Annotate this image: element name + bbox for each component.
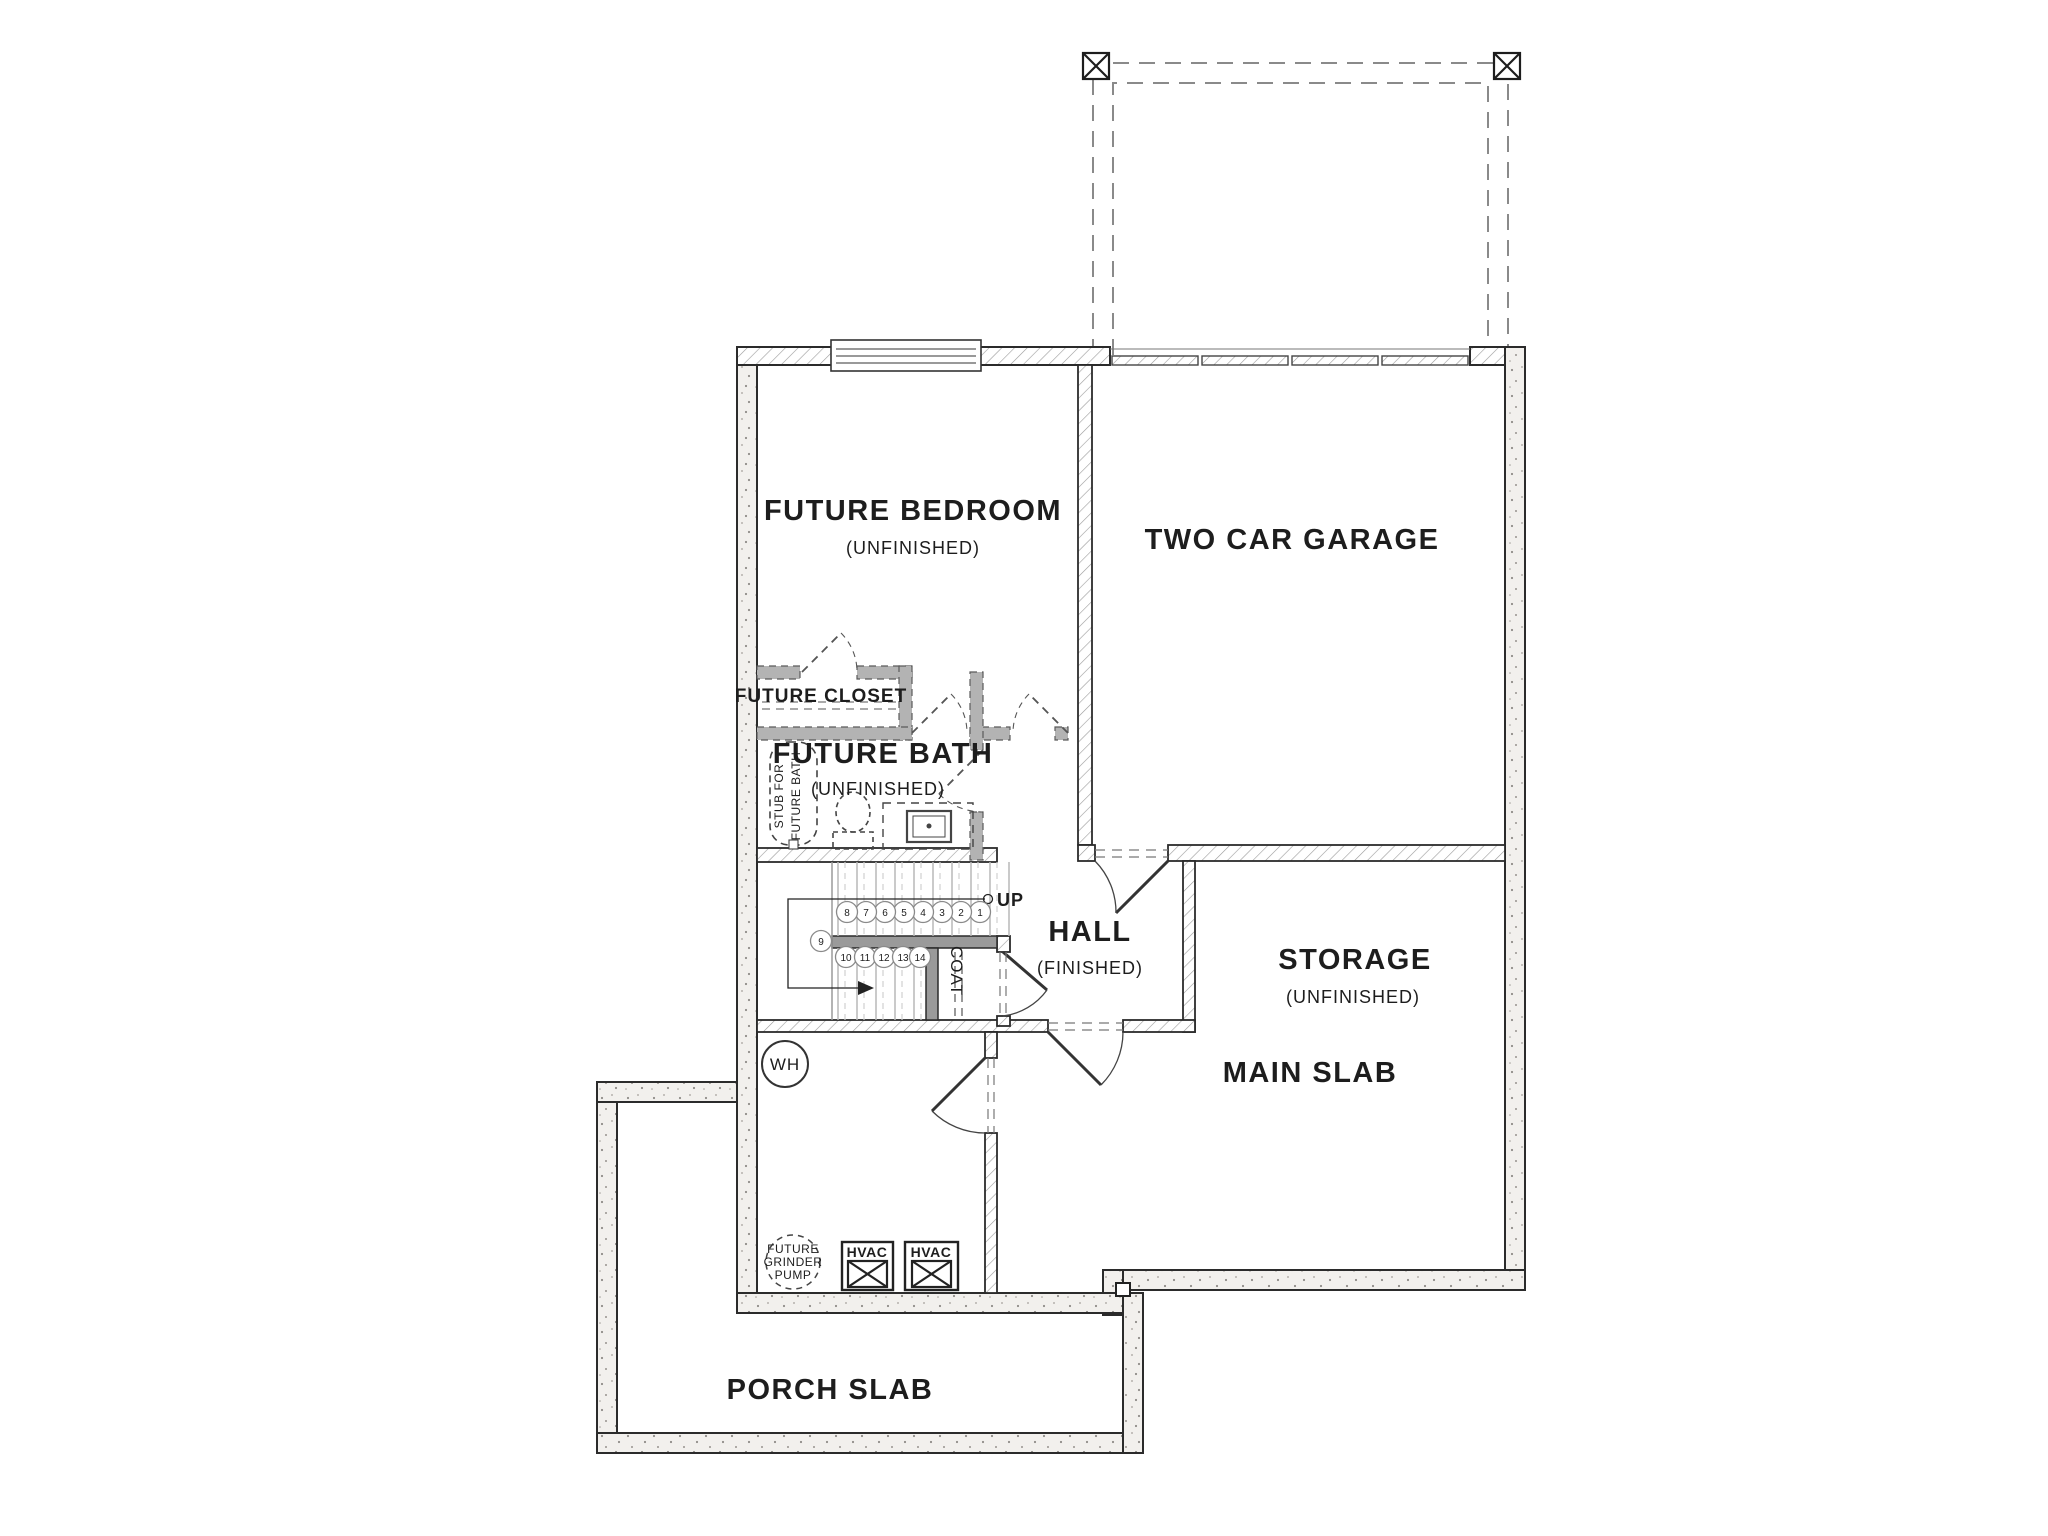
wall-porch-top [597,1082,737,1102]
future-closet-label: FUTURE CLOSET [735,686,907,707]
storage-status: (UNFINISHED) [1286,987,1420,1007]
main-slab-label: MAIN SLAB [1223,1057,1398,1089]
wall-porch-left [597,1082,617,1453]
wall-garage-bottom-b [1168,845,1505,861]
future-bath-status: (UNFINISHED) [811,779,945,799]
tread-7: 7 [863,908,869,919]
future-bedroom-label: FUTURE BEDROOM [764,495,1062,527]
wall-hall-bottom-b [1123,1020,1195,1032]
wall-left-main [737,347,757,1313]
future-closet-top-a [757,666,800,679]
porch-slab-label: PORCH SLAB [727,1374,934,1406]
garage-label: TWO CAR GARAGE [1145,524,1440,556]
wall-coat-jamb-top [997,936,1010,952]
apron-post-left-icon [1083,53,1109,79]
tread-8: 8 [844,908,850,919]
wall-coat-jamb-bottom [997,1016,1010,1026]
tread-10: 10 [840,953,852,964]
coat-label: COAT [947,946,966,996]
hvac-unit-1-label: HVAC [847,1244,888,1260]
up-label: UP [997,890,1024,910]
stair-center-rail [832,936,997,948]
wall-bath-bottom [757,848,997,862]
floor-plan-drawing: UP 1 2 3 4 5 6 7 8 9 10 11 [0,0,2048,1536]
tub-drain-icon [789,840,798,849]
tread-11: 11 [860,953,871,964]
hvac-unit-2: HVAC [905,1242,958,1290]
wall-hall-storage [1183,861,1195,1032]
hall-label: HALL [1048,916,1131,948]
tub-stub-note-line2: FUTURE BATH [789,752,803,841]
tread-12: 12 [878,953,890,964]
wall-bottom-main-slab [1103,1270,1525,1290]
tread-9: 9 [818,937,824,948]
water-heater: WH [762,1041,808,1087]
hvac-unit-2-label: HVAC [911,1244,952,1260]
wall-porch-right [1123,1293,1143,1453]
hvac-unit-1: HVAC [842,1242,893,1290]
wall-mech-right-b [985,1133,997,1293]
grinder-pump-line1: FUTURE [767,1242,819,1256]
grinder-pump-line2: GRINDER [764,1255,823,1269]
tread-1: 1 [977,908,983,919]
wall-bottom-mechanical [737,1293,1123,1313]
sink-drain-icon [927,824,932,829]
tread-6: 6 [882,908,888,919]
tread-13: 13 [897,953,909,964]
grinder-pump-line3: PUMP [775,1268,812,1282]
tread-2: 2 [958,908,964,919]
floor-plan-page: UP 1 2 3 4 5 6 7 8 9 10 11 [0,0,2048,1536]
future-landing-jamb [1055,727,1068,740]
tread-14: 14 [914,953,926,964]
apron-post-right-icon [1494,53,1520,79]
tread-3: 3 [939,908,945,919]
wall-mech-right-a [985,1032,997,1058]
future-bath-label: FUTURE BATH [773,738,994,770]
wall-bedroom-garage [1078,365,1092,845]
porch-corner-post [1116,1283,1130,1296]
wall-porch-bottom [597,1433,1143,1453]
tub-stub-note-line1: STUB FOR [772,764,786,829]
storage-label: STORAGE [1278,944,1431,976]
hall-status: (FINISHED) [1037,958,1143,978]
future-bedroom-status: (UNFINISHED) [846,538,980,558]
wall-garage-bottom-a [1078,845,1095,861]
wall-right-main [1505,347,1525,1290]
future-bath-east-b [970,812,983,860]
bedroom-window-icon [831,340,981,371]
tread-4: 4 [920,908,926,919]
tread-5: 5 [901,908,907,919]
water-heater-label: WH [770,1055,800,1074]
